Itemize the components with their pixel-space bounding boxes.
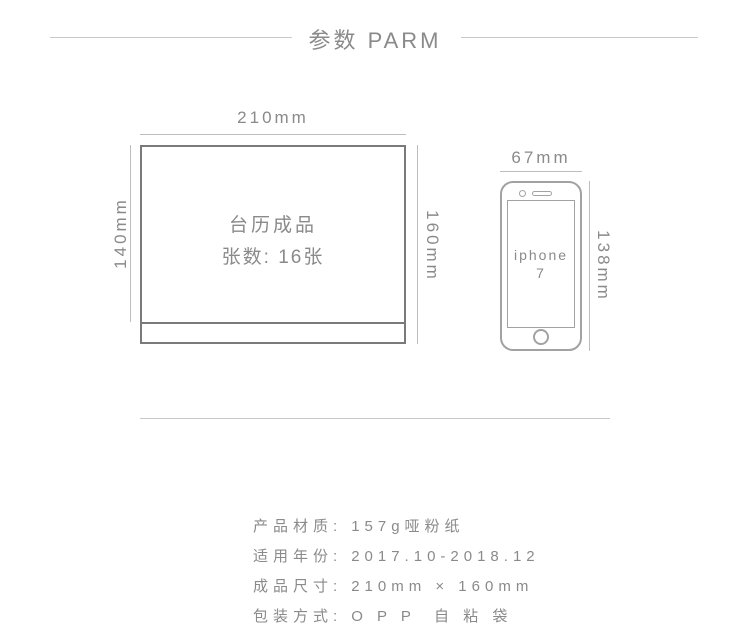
phone-screen: iphone 7 [507,200,575,328]
phone-width-dim-line [500,171,582,172]
calendar-sheet-count: 张数: 16张 [142,242,404,269]
phone-camera-icon [519,190,526,197]
spec-row-material: 产品材质:157g哑粉纸 [228,482,540,512]
phone-home-button-icon [533,329,549,345]
spec-list: 产品材质:157g哑粉纸 适用年份:2017.10-2018.12 成品尺寸:2… [228,482,540,602]
phone-outline: iphone 7 [500,181,582,351]
calendar-width-dim-line [140,134,406,135]
spec-label: 适用年份: [253,548,342,565]
spec-value: O P P 自 粘 袋 [351,608,512,625]
phone-model-label-line2: 7 [536,265,546,282]
spec-label: 成品尺寸: [253,578,342,595]
page-title: 参数 PARM [0,23,750,55]
calendar-right-dim-line [417,145,418,344]
section-divider [140,418,610,419]
header-rule-right [461,37,698,38]
calendar-width-label: 210mm [140,108,406,128]
phone-speaker-icon [532,191,552,196]
phone-width-label: 67mm [500,148,582,168]
phone-height-dim-line [589,181,590,351]
calendar-right-height-label: 160mm [422,201,442,291]
calendar-base-line [142,322,404,342]
spec-label: 包装方式: [253,608,342,625]
calendar-outline: 台历成品 张数: 16张 [140,145,406,344]
spec-value: 2017.10-2018.12 [351,548,539,565]
spec-value: 157g哑粉纸 [351,518,464,535]
calendar-left-height-label: 140mm [111,188,131,278]
phone-model-label-line1: iphone [514,247,568,264]
parameter-infographic: 参数 PARM 210mm 140mm 160mm 台历成品 张数: 16张 6… [0,0,750,627]
spec-label: 产品材质: [253,518,342,535]
phone-height-label: 138mm [593,221,613,311]
calendar-product-name: 台历成品 [142,210,404,237]
spec-value: 210mm × 160mm [351,578,533,595]
